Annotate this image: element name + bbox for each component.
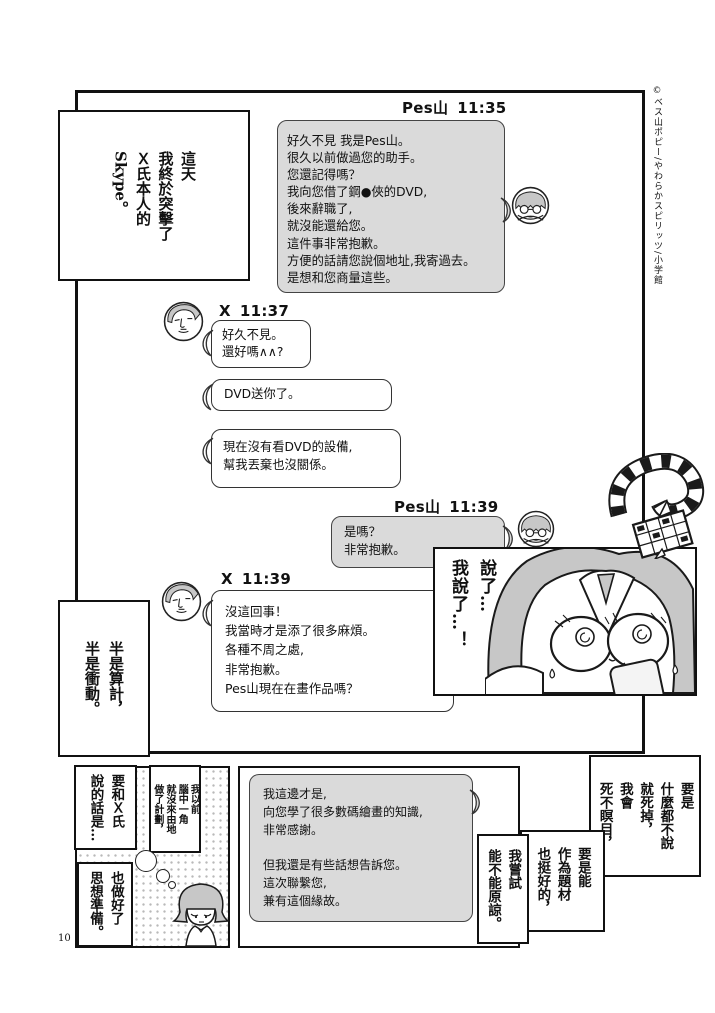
forgive-narration-text: 我嘗試能不能原諒。 — [483, 849, 524, 930]
vertical-text-column: 思想準備。 — [84, 871, 105, 939]
vertical-text-column: 半是衝動。 — [80, 641, 104, 716]
manga-page: ©ベス山ポピー/やわらかスピリッツ/小学館 這天我終於突擊了Ｘ氏本人的Skype… — [0, 0, 715, 1013]
vertical-text-column: 能不能原諒。 — [483, 849, 503, 930]
chat-time: 11:39 — [242, 570, 291, 588]
closeup-panel: 說了…我說了…！ — [433, 547, 697, 696]
chat-header-x-1: X11:37 — [219, 302, 289, 320]
page-number: 10 — [58, 933, 71, 944]
bubble-tail — [469, 788, 485, 816]
plan-thought-box: 我以前腦中一角就沒來由地做了計劃， — [149, 765, 201, 853]
vertical-text-column: 什麼都不說 — [655, 782, 675, 850]
chat-bubble-x-2: DVD送你了。 — [211, 379, 392, 411]
vertical-text-column: 半是算計， — [104, 641, 128, 716]
chat-sender: X — [221, 570, 233, 588]
chat-header-x-2: X11:39 — [221, 570, 291, 588]
vertical-text-column: 我會 — [615, 782, 635, 850]
x-avatar-icon — [161, 581, 202, 622]
vertical-text-column: 腦中一角 — [175, 784, 187, 834]
bottom-left-panel: 要和Ｘ氏說的話是… 我以前腦中一角就沒來由地做了計劃， 也做好了思想準備。 — [75, 766, 230, 948]
vertical-text-column: 就死掉， — [635, 782, 655, 850]
bubble-tail — [197, 382, 214, 412]
bubble-tail — [197, 436, 214, 466]
intro-narration-text: 這天我終於突擊了Ｘ氏本人的Skype。 — [109, 151, 199, 241]
pes-avatar-icon — [511, 186, 550, 225]
material-narration-box: 要是能作為題材也挺好的， — [520, 830, 605, 932]
prepare-narration-box: 也做好了思想準備。 — [77, 862, 133, 947]
vertical-text-column: Skype。 — [109, 151, 132, 241]
vertical-text-column: 我說了…！ — [444, 559, 472, 649]
die-narration-box: 要是什麼都不說就死掉，我會死不瞑目， — [589, 755, 701, 877]
vertical-text-column: 我以前 — [187, 784, 199, 834]
chat-bubble-x-1: 好久不見。 還好嗎∧∧? — [211, 320, 311, 368]
closeup-monologue-text: 說了…我說了…！ — [444, 559, 500, 649]
vertical-text-column: 就沒來由地 — [163, 784, 175, 834]
horn-doodle-icon — [607, 453, 707, 559]
closeup-girl-face-art — [485, 547, 697, 695]
intro-narration-box: 這天我終於突擊了Ｘ氏本人的Skype。 — [58, 110, 250, 281]
vertical-text-column: 要和Ｘ氏 — [106, 774, 127, 842]
vertical-text-column: 要是 — [675, 782, 695, 850]
chat-time: 11:35 — [457, 99, 506, 117]
vertical-text-column: Ｘ氏本人的 — [132, 151, 155, 241]
chat-time: 11:39 — [449, 498, 498, 516]
half-narration-box: 半是算計，半是衝動。 — [58, 600, 150, 757]
chat-bubble-x-5: 我這邊才是, 向您學了很多數碼繪畫的知識, 非常感謝。 但我還是有些話想告訴您。… — [249, 774, 473, 922]
chat-bubble-x-4: 沒這回事！ 我當時才是添了很多麻煩。 各種不周之處, 非常抱歉。 Pes山現在在… — [211, 590, 454, 712]
chat-bubble-pes-1: 好久不見 我是Pes山。 很久以前做過您的助手。 您還記得嗎？ 我向您借了鋼●俠… — [277, 120, 505, 293]
bubble-tail — [197, 328, 214, 358]
chat-header-pes-1: Pes山11:35 — [402, 97, 507, 118]
chat-header-pes-2: Pes山11:39 — [394, 496, 499, 517]
thinking-girl-art — [172, 878, 230, 948]
chat-sender: Pes山 — [394, 498, 440, 516]
bubble-tail — [197, 598, 214, 628]
die-narration-text: 要是什麼都不說就死掉，我會死不瞑目， — [594, 782, 695, 850]
vertical-text-column: 我終於突擊了 — [154, 151, 177, 241]
chat-time: 11:37 — [240, 302, 289, 320]
vertical-text-column: 也挺好的， — [532, 847, 552, 915]
vertical-text-column: 這天 — [177, 151, 200, 241]
material-narration-text: 要是能作為題材也挺好的， — [532, 847, 593, 915]
chat-sender: X — [219, 302, 231, 320]
vertical-text-column: 也做好了 — [105, 871, 126, 939]
prepare-narration-text: 也做好了思想準備。 — [84, 871, 126, 939]
vertical-text-column: 作為題材 — [552, 847, 572, 915]
vertical-text-column: 我嘗試 — [503, 849, 523, 930]
talk-narration-text: 要和Ｘ氏說的話是… — [85, 774, 127, 842]
thought-bubble-circle — [135, 850, 157, 872]
pes-avatar-icon — [517, 510, 555, 548]
vertical-text-column: 說的話是… — [85, 774, 106, 842]
half-narration-text: 半是算計，半是衝動。 — [80, 641, 128, 716]
chat-bubble-x-3: 現在沒有看DVD的設備, 幫我丟棄也沒關係。 — [211, 429, 401, 488]
vertical-text-column: 說了… — [472, 559, 500, 649]
vertical-text-column: 做了計劃， — [151, 784, 163, 834]
thought-bubble-circle — [156, 869, 170, 883]
plan-thought-text: 我以前腦中一角就沒來由地做了計劃， — [151, 784, 200, 834]
talk-narration-box: 要和Ｘ氏說的話是… — [74, 765, 137, 850]
forgive-narration-box: 我嘗試能不能原諒。 — [477, 834, 529, 944]
vertical-text-column: 要是能 — [573, 847, 593, 915]
copyright-text: ©ベス山ポピー/やわらかスピリッツ/小学館 — [650, 86, 663, 301]
chat-sender: Pes山 — [402, 99, 448, 117]
